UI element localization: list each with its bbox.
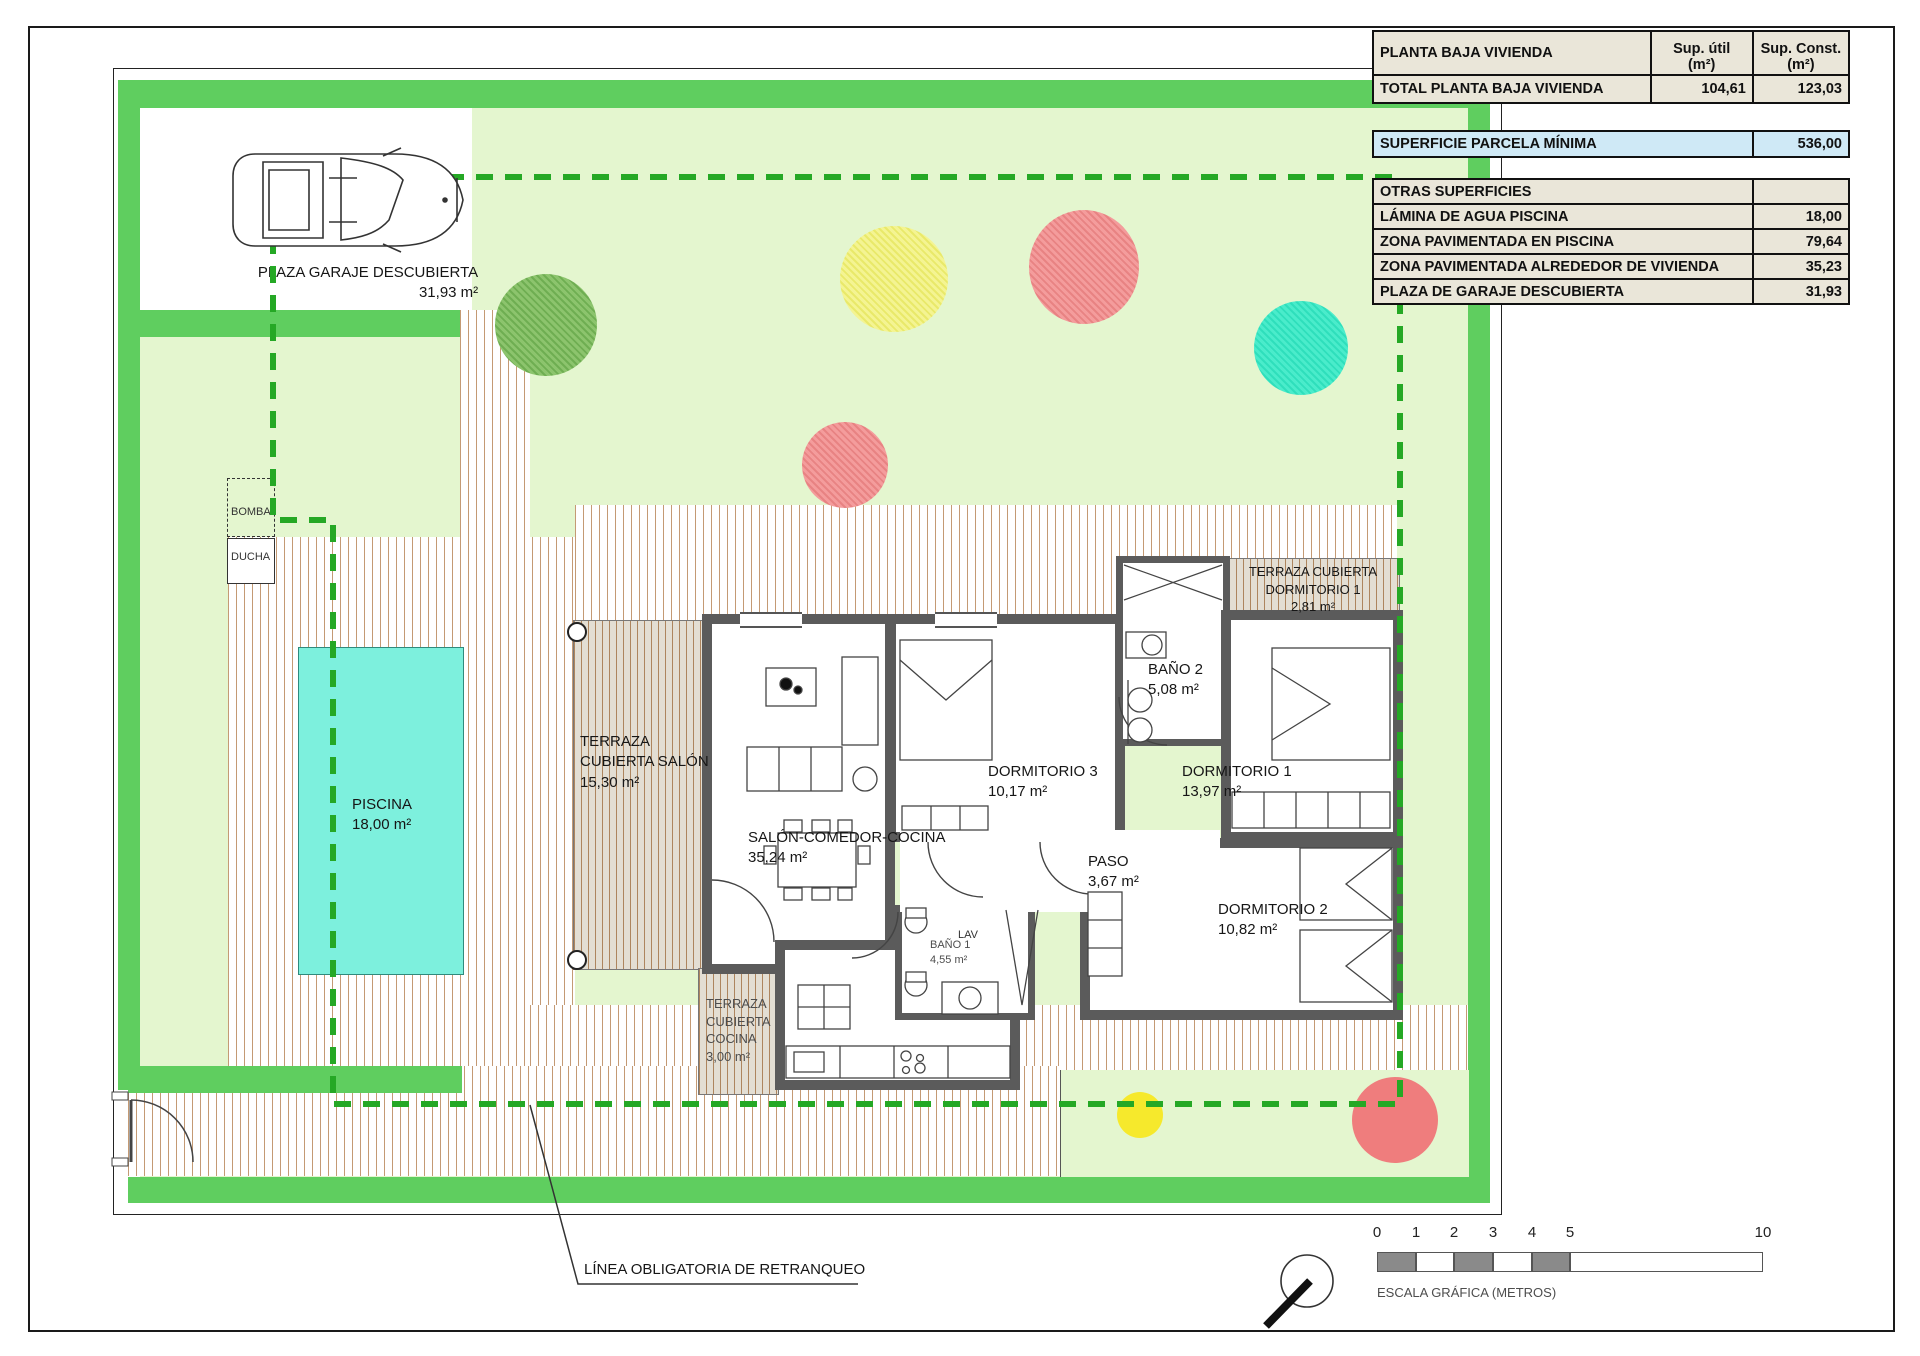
gate-post-top <box>112 1092 128 1100</box>
table-otras-title-row: OTRAS SUPERFICIES <box>1372 178 1850 205</box>
row-value: 79,64 <box>1752 230 1848 253</box>
door-arc-salon <box>712 880 774 942</box>
row-label: ZONA PAVIMENTADA ALREDEDOR DE VIVIENDA <box>1374 255 1752 278</box>
dorm1-label: DORMITORIO 113,97 m² <box>1182 762 1292 803</box>
furniture-kitchen <box>786 1046 1010 1078</box>
total-sup-const: 123,03 <box>1752 76 1848 102</box>
bano1-label: BAÑO 14,55 m² <box>930 938 970 968</box>
terraza-cocina-label: TERRAZACUBIERTACOCINA3,00 m² <box>706 995 771 1065</box>
parcela-label: SUPERFICIE PARCELA MÍNIMA <box>1374 132 1752 156</box>
setback-dashed-line <box>273 177 1400 1104</box>
row-label: PLAZA DE GARAJE DESCUBIERTA <box>1374 280 1752 303</box>
table-header-row: PLANTA BAJA VIVIENDA Sup. útil(m²) Sup. … <box>1372 30 1850 76</box>
row-value: 18,00 <box>1752 205 1848 228</box>
gate-arc <box>131 1100 193 1162</box>
table-total-row: TOTAL PLANTA BAJA VIVIENDA 104,61 123,03 <box>1372 74 1850 104</box>
dorm3-label: DORMITORIO 310,17 m² <box>988 762 1098 803</box>
salon-label: SALÓN-COMEDOR-COCINA35,24 m² <box>748 828 946 869</box>
otras-title: OTRAS SUPERFICIES <box>1374 180 1752 203</box>
retranqueo-leader-line <box>530 1105 858 1284</box>
furniture-bano1 <box>905 908 1038 1014</box>
row-label: LÁMINA DE AGUA PISCINA <box>1374 205 1752 228</box>
terraza-salon-label: TERRAZACUBIERTA SALÓN15,30 m² <box>580 732 709 793</box>
table-row-zona-piscina: ZONA PAVIMENTADA EN PISCINA 79,64 <box>1372 228 1850 255</box>
row-value: 31,93 <box>1752 280 1848 303</box>
gate-post-bottom <box>112 1158 128 1166</box>
parcela-value: 536,00 <box>1752 132 1848 156</box>
table-row-plaza-garaje: PLAZA DE GARAJE DESCUBIERTA 31,93 <box>1372 278 1850 305</box>
table-row-lamina: LÁMINA DE AGUA PISCINA 18,00 <box>1372 203 1850 230</box>
door-arc-bano1 <box>852 912 898 958</box>
terraza-dorm1-label: TERRAZA CUBIERTADORMITORIO 12,81 m² <box>1249 563 1377 616</box>
paso-label: PASO3,67 m² <box>1088 852 1139 893</box>
north-symbol-needle <box>1266 1281 1310 1326</box>
car-top-view <box>233 148 463 252</box>
table-header-title: PLANTA BAJA VIVIENDA <box>1374 32 1650 74</box>
piscina-label: PISCINA18,00 m² <box>352 795 412 836</box>
total-sup-util: 104,61 <box>1650 76 1752 102</box>
row-label: ZONA PAVIMENTADA EN PISCINA <box>1374 230 1752 253</box>
table-row-zona-vivienda: ZONA PAVIMENTADA ALREDEDOR DE VIVIENDA 3… <box>1372 253 1850 280</box>
total-label: TOTAL PLANTA BAJA VIVIENDA <box>1374 76 1650 102</box>
closet-cross <box>1124 565 1222 600</box>
table-header-sup-const: Sup. Const.(m²) <box>1752 32 1848 74</box>
furniture-dorm3 <box>900 640 992 830</box>
table-header-sup-util: Sup. útil(m²) <box>1650 32 1752 74</box>
drawing-sheet: PLAZA GARAJE DESCUBIERTA 31,93 m² BOMBA … <box>0 0 1920 1356</box>
table-parcela-row: SUPERFICIE PARCELA MÍNIMA 536,00 <box>1372 130 1850 158</box>
bano2-label: BAÑO 25,08 m² <box>1148 660 1203 701</box>
dorm2-label: DORMITORIO 210,82 m² <box>1218 900 1328 941</box>
door-arc-dorm2 <box>1040 842 1092 894</box>
row-value: 35,23 <box>1752 255 1848 278</box>
otras-title-empty <box>1752 180 1848 203</box>
